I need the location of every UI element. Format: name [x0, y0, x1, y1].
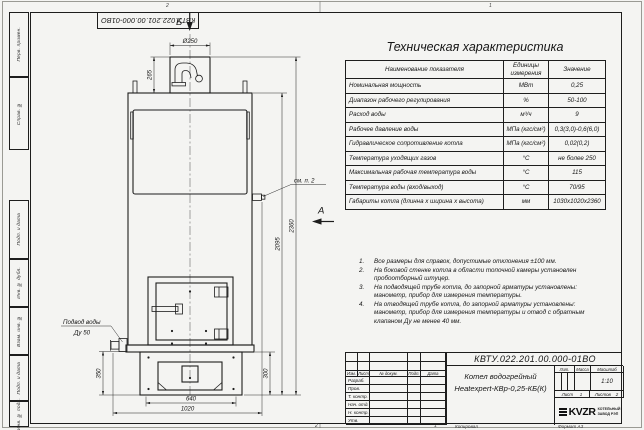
top-pin-right	[243, 81, 247, 93]
extension-lines	[99, 43, 301, 417]
title-block-signature-grid: Изм. Лист № докум. Подп. Дата Разраб. Пр…	[346, 353, 446, 425]
spec-table-title: Техническая характеристика	[345, 40, 605, 54]
top-pin-left	[133, 81, 137, 93]
row-tkontr: Т. контр.	[346, 393, 370, 401]
sheets-cell: Листов 2	[590, 391, 624, 398]
row-prov: Пров.	[346, 385, 370, 393]
spec-row: Расход водым³/ч9	[346, 108, 606, 123]
dimension-lines	[103, 46, 296, 414]
title-block: Изм. Лист № докум. Подп. Дата Разраб. Пр…	[345, 352, 622, 424]
manufacturer-logo: KVZR КОТЕЛЬНЫЙ ЗАВОД РЭП	[555, 398, 624, 425]
dim-diameter: Ø250	[182, 39, 198, 45]
dim-base-height-left: 350	[97, 368, 103, 379]
note-item: 4.На отводящей трубе котла, до запорной …	[357, 301, 610, 327]
door-hinge-top	[215, 287, 229, 297]
kvzr-logo-text: KVZR	[569, 406, 596, 418]
dim-base-width: 640	[186, 397, 197, 403]
note-item: 1.Все размеры для справок, допустимые от…	[357, 258, 610, 267]
note-item: 2.На боковой стенке котла в области топо…	[357, 267, 610, 284]
dim-total-height: 2360	[290, 219, 296, 234]
row-nkontr: Н. контр.	[346, 409, 370, 417]
row-utv: Утв.	[346, 417, 370, 425]
view-b-label: Б	[176, 17, 182, 28]
col-name: Наименование показателя	[346, 61, 504, 79]
door-hinge-bottom	[215, 329, 229, 339]
note-item: 3.На подводящей трубе котла, до запорной…	[357, 284, 610, 301]
drawing-sheet: 2 1 2 1 Копировал Формат А3 Перв. примен…	[0, 0, 644, 430]
kvzr-logo-caption: КОТЕЛЬНЫЙ ЗАВОД РЭП	[598, 407, 621, 416]
panel-hinge-left	[131, 112, 134, 139]
plinth	[140, 352, 242, 395]
view-b-arrow	[187, 22, 193, 31]
title-block-product-name: Котел водогрейный Heatexpert-КВр-0,25-КБ…	[446, 366, 554, 425]
row-nachotd: Нач. отд.	[346, 401, 370, 409]
lit-label: Лит.	[555, 366, 575, 373]
scale-label: Масштаб	[591, 366, 624, 373]
col-units: Единицы измерения	[504, 61, 549, 79]
boiler-details	[111, 63, 265, 390]
spec-row: Диапазон рабочего регулирования%50-100	[346, 93, 606, 108]
sheet-cell: Лист 1	[555, 391, 590, 398]
mass-label: Масса	[575, 366, 591, 373]
panel-hinge-right	[247, 112, 250, 139]
flue-elbow-inner	[182, 71, 191, 83]
sampling-fitting	[253, 194, 262, 200]
spec-row: Максимальная рабочая температура воды°С1…	[346, 166, 606, 181]
spec-row: Температура уходящих газов°Сне более 250	[346, 151, 606, 166]
scale-value: 1:10	[591, 373, 624, 391]
dim-base-height-right: 300	[264, 368, 270, 379]
title-block-right: Лит. Масса Масштаб 1:10 Лист 1 Листов 2	[554, 366, 623, 425]
spec-header-row: Наименование показателя Единицы измерени…	[346, 61, 606, 79]
spec-table: Наименование показателя Единицы измерени…	[345, 60, 606, 210]
flue-outlet	[196, 75, 203, 82]
title-block-doc-number: КВТУ.022.201.00.000-01ВО	[446, 353, 623, 366]
spec-row: Гидравлическое сопротивление котлаМПа (к…	[346, 137, 606, 152]
see-note-callout: см. п. 2	[294, 179, 315, 185]
dim-total-width: 1020	[181, 407, 195, 413]
dim-chimney-height: 265	[148, 69, 154, 81]
flue-elbow-outer	[175, 63, 198, 83]
water-inlet-size: Ду 50	[73, 330, 91, 337]
kvzr-logo-icon	[559, 407, 567, 416]
view-a-arrow	[312, 218, 322, 224]
dim-body-height: 2095	[276, 237, 282, 252]
dimension-texts: Ø250 265 2095 2360 300 350 640 1020	[97, 39, 296, 413]
water-inlet-pipe	[111, 342, 119, 350]
spec-row: Габариты котла (длинна х ширина х высота…	[346, 195, 606, 210]
flue-flange	[172, 83, 186, 86]
view-a-label: А	[317, 206, 324, 217]
notes-list: 1.Все размеры для справок, допустимые от…	[357, 258, 610, 327]
leader-lines	[61, 185, 326, 343]
row-razrab: Разраб.	[346, 377, 370, 385]
water-inlet-label: Подвод воды	[63, 319, 101, 326]
spec-row: Температура воды (вход/выход)°С70/95	[346, 180, 606, 195]
col-value: Значение	[549, 61, 606, 79]
view-arrows: Б А	[176, 13, 334, 225]
spec-row: Номинальная мощностьМВт0,25	[346, 79, 606, 94]
door-handle-mount	[176, 304, 183, 314]
spec-row: Рабочее давление водыМПа (кгс/см²)0,3(3,…	[346, 122, 606, 137]
